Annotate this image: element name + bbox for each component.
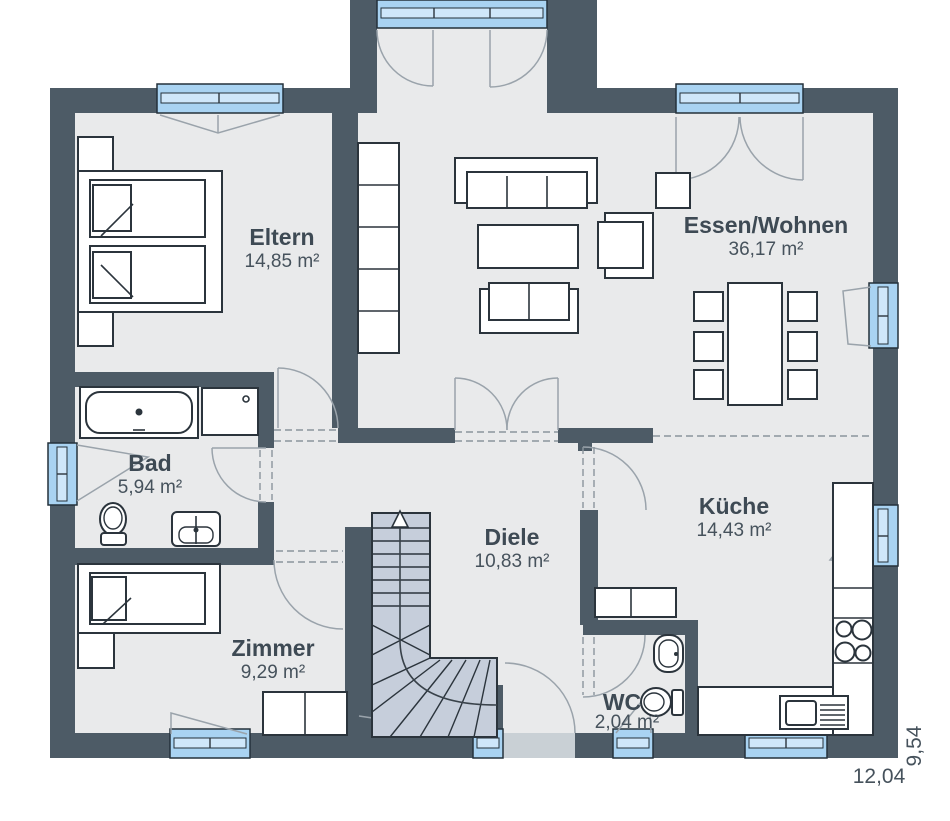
zimmer-bed: [78, 564, 220, 633]
window-bad-left: [48, 443, 77, 505]
label-eltern: Eltern: [249, 224, 314, 250]
floor-plan-svg: Eltern 14,85 m² Essen/Wohnen 36,17 m² Ba…: [0, 0, 950, 821]
wall-right-b: [873, 348, 898, 505]
dimension-depth: 9,54: [903, 725, 926, 766]
label-zimmer: Zimmer: [231, 635, 314, 661]
zimmer-nightstand: [78, 633, 114, 668]
label-bad: Bad: [128, 450, 171, 476]
sofa-three-seat: [455, 158, 597, 208]
bay-floor: [377, 28, 547, 118]
wall-top-left-a: [50, 88, 157, 113]
armchair: [598, 213, 653, 278]
coffee-table: [478, 225, 578, 268]
wall-left-upper: [50, 88, 75, 443]
wall-left-lower: [50, 505, 75, 758]
dining-chair: [694, 332, 723, 361]
kitchen-counter-bottom: [698, 687, 848, 735]
sofa-two-seat: [480, 283, 578, 333]
eltern-nightstand-top: [78, 137, 113, 171]
label-zimmer-area: 9,29 m²: [241, 662, 305, 683]
wall-right-a: [873, 88, 898, 283]
wall-stair-west: [345, 527, 372, 733]
window-bay-top: [377, 0, 547, 28]
wall-wc-north: [583, 620, 698, 635]
wall-eltern-bad: [75, 372, 274, 387]
label-eltern-area: 14,85 m²: [245, 251, 320, 272]
hall-cabinet: [595, 588, 676, 617]
dining-chair: [694, 370, 723, 399]
wall-bay-right: [547, 0, 597, 90]
bathtub: [80, 387, 198, 438]
wall-right-c: [873, 565, 898, 758]
shower: [202, 388, 258, 435]
wall-bottom-e: [827, 733, 898, 758]
window-zimmer-bottom: [170, 729, 250, 758]
label-diele-area: 10,83 m²: [475, 551, 550, 572]
label-diele: Diele: [485, 524, 540, 550]
label-bad-area: 5,94 m²: [118, 477, 182, 498]
window-essen-right: [869, 283, 898, 348]
wall-bottom-d: [653, 733, 745, 758]
dining-table: [728, 283, 782, 405]
label-essen-wohnen-area: 36,17 m²: [729, 239, 804, 260]
dining-chair: [788, 332, 817, 361]
entrance-threshold: [503, 733, 575, 758]
label-essen-wohnen: Essen/Wohnen: [684, 212, 848, 238]
label-kueche-area: 14,43 m²: [697, 520, 772, 541]
wall-bad-zimmer: [50, 548, 274, 565]
side-table: [656, 173, 690, 208]
wall-top-right-a: [547, 88, 676, 113]
wall-bottom-a: [50, 733, 170, 758]
dimension-width: 12,04: [853, 765, 906, 788]
dining-set: [694, 283, 817, 405]
wall-bad-east-a: [258, 372, 274, 448]
window-eltern-top: [157, 84, 283, 113]
window-wc-bottom: [613, 729, 653, 758]
window-essen-top: [676, 84, 803, 113]
wall-diele-north-b: [558, 428, 653, 443]
bad-toilet: [100, 503, 126, 545]
kitchen-sink: [780, 696, 848, 729]
wohnen-shelf-unit: [358, 143, 399, 353]
dining-chair: [788, 370, 817, 399]
dining-chair: [694, 292, 723, 321]
eltern-double-bed: [78, 171, 222, 312]
floor-plan-page: Eltern 14,85 m² Essen/Wohnen 36,17 m² Ba…: [0, 0, 950, 821]
wall-diele-north-a: [338, 428, 455, 443]
wall-bottom-c: [575, 733, 613, 758]
wall-wc-east: [685, 635, 698, 733]
label-kueche: Küche: [699, 493, 769, 519]
wall-eltern-east: [332, 88, 358, 428]
zimmer-desk: [263, 692, 347, 735]
label-wc-area: 2,04 m²: [595, 712, 659, 733]
bad-sink: [172, 512, 220, 546]
wc-sink: [654, 635, 683, 672]
dining-chair: [788, 292, 817, 321]
eltern-nightstand-bottom: [78, 312, 113, 346]
